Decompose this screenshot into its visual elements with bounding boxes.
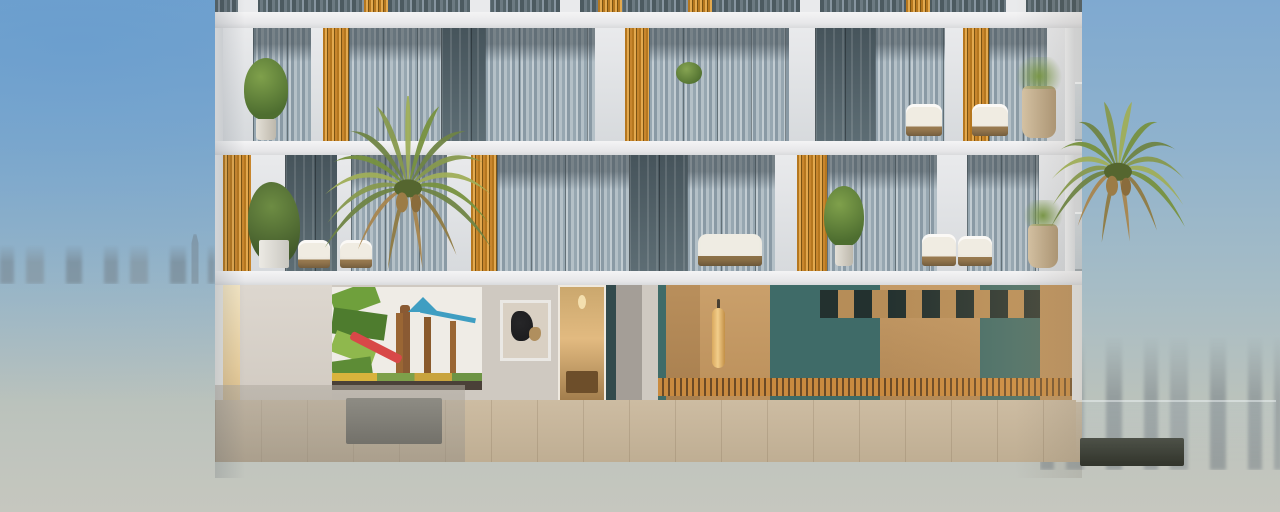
scene-root bbox=[0, 0, 1280, 512]
atmospheric-haze bbox=[0, 0, 1280, 512]
